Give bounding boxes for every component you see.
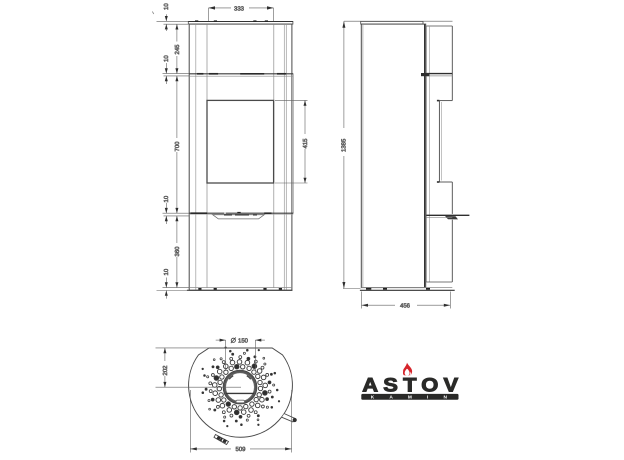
svg-text:150: 150: [238, 338, 249, 345]
svg-text:1385: 1385: [341, 138, 348, 152]
svg-text:10: 10: [163, 3, 170, 10]
svg-text:202: 202: [162, 365, 169, 376]
svg-text:360: 360: [174, 246, 181, 257]
svg-text:700: 700: [174, 141, 181, 152]
svg-text:509: 509: [236, 446, 247, 453]
svg-text:333: 333: [234, 5, 245, 12]
svg-text:ASTOV: ASTOV: [362, 374, 463, 396]
svg-text:245: 245: [174, 44, 181, 55]
svg-text:10: 10: [163, 55, 170, 62]
svg-text:456: 456: [400, 303, 411, 310]
svg-text:415: 415: [302, 138, 309, 149]
svg-text:10: 10: [163, 195, 170, 202]
svg-text:10: 10: [163, 268, 170, 275]
svg-text:KAMIN: KAMIN: [371, 395, 462, 401]
